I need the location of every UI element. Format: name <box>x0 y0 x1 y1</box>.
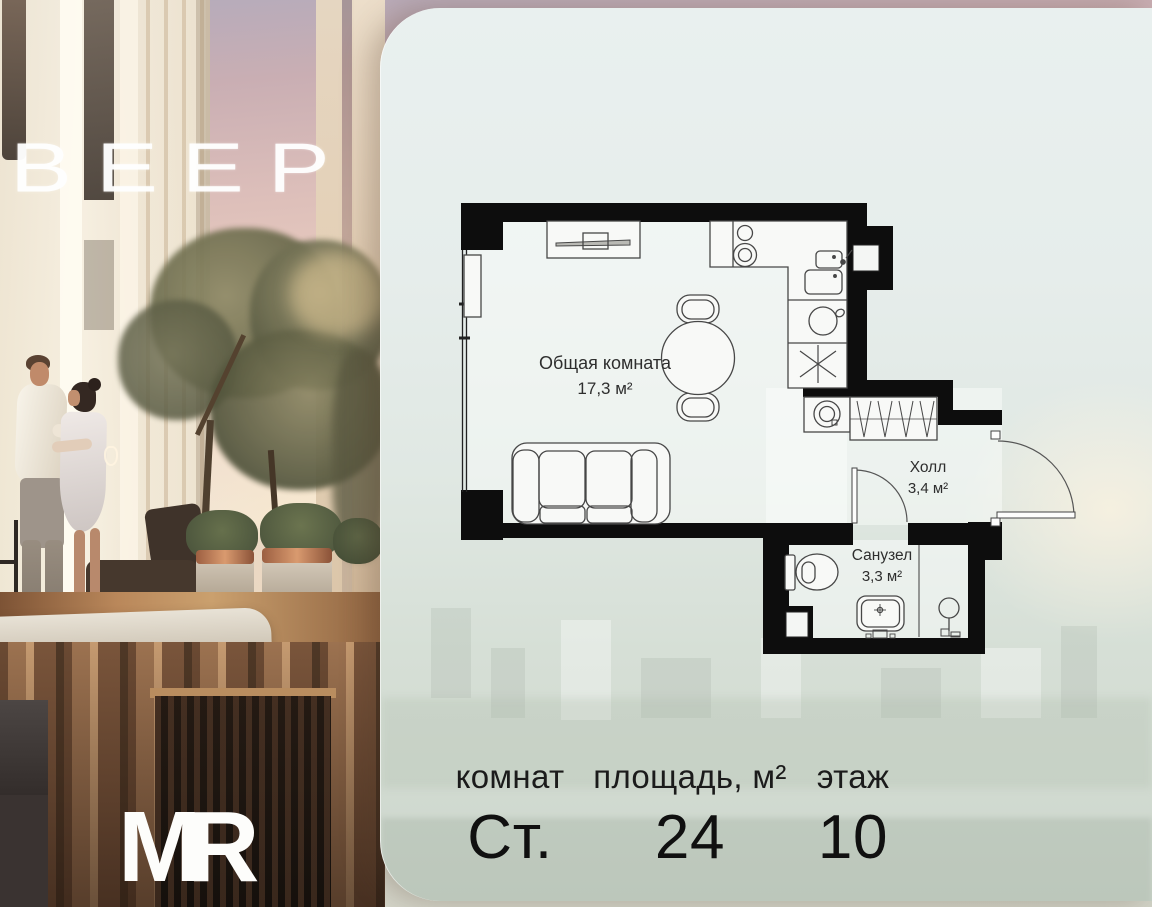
room-label-hall: Холл 3,4 м² <box>878 458 978 499</box>
photo-woman-hair-bun <box>88 378 101 391</box>
room-area: 3,3 м² <box>832 568 932 587</box>
room-name: Общая комната <box>505 352 705 375</box>
photo-dark-panel <box>0 795 48 907</box>
room-label-living: Общая комната 17,3 м² <box>505 352 705 399</box>
room-name: Холл <box>878 458 978 477</box>
photo-shrub <box>333 518 383 564</box>
room-label-bathroom: Санузел 3,3 м² <box>832 546 932 587</box>
photo-tree-highlight <box>290 252 385 337</box>
summary-area-label: площадь, м² <box>593 758 786 796</box>
summary-rooms: комнат Ст. <box>440 758 580 873</box>
photo-dark-panel <box>0 700 48 795</box>
photo-chair-frame <box>0 560 18 564</box>
photo-man-legs <box>20 478 64 548</box>
mr-logo: MR <box>118 790 246 905</box>
summary-area-value: 24 <box>655 802 725 873</box>
summary-rooms-label: комнат <box>456 758 565 796</box>
photo-wine-glass <box>104 446 118 466</box>
photo-man-face <box>30 362 49 386</box>
summary-floor: этаж 10 <box>800 758 906 873</box>
photo-woman-face <box>68 390 80 406</box>
summary-floor-label: этаж <box>817 758 890 796</box>
summary-row: комнат Ст. площадь, м² 24 этаж 10 <box>440 758 906 873</box>
room-area: 17,3 м² <box>505 378 705 399</box>
photo-planter-band <box>196 550 254 564</box>
photo-pilaster <box>120 0 138 600</box>
room-name: Санузел <box>832 546 932 565</box>
photo-planter-band <box>262 548 332 563</box>
summary-floor-value: 10 <box>818 802 888 873</box>
listing-card: ВЕЕР MR <box>0 0 1152 907</box>
room-area: 3,4 м² <box>878 480 978 499</box>
photo-woman <box>59 412 107 533</box>
summary-rooms-value: Ст. <box>467 802 552 873</box>
panel-sun-glow <box>960 380 1152 640</box>
veer-logo: ВЕЕР <box>10 128 354 208</box>
photo-window-band <box>84 240 114 330</box>
summary-area: площадь, м² 24 <box>590 758 790 873</box>
